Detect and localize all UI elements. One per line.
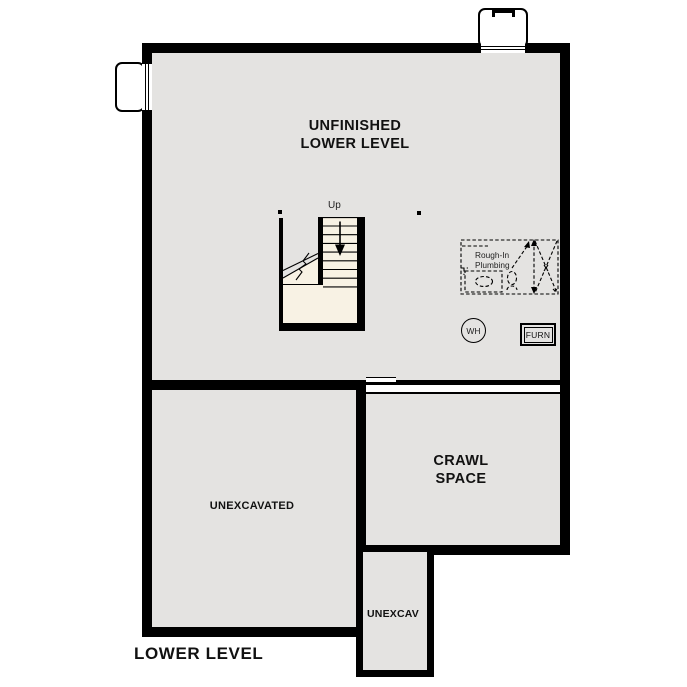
crawl-space-access-hatch (366, 377, 396, 383)
unexcav-label: UNEXCAV (353, 608, 433, 620)
rough-in-plumbing-area: Rough-In Plumbing (458, 236, 562, 298)
future-toilet-base (507, 286, 517, 290)
plan-title: LOWER LEVEL (134, 644, 263, 664)
staircase (275, 200, 370, 335)
window-glazing-line (481, 49, 525, 50)
window-marker-icon (492, 10, 515, 17)
furnace-inner-box: FURN (524, 327, 553, 343)
main-room-label-line1: UNFINISHED (255, 118, 455, 136)
crawl-space-access-gap (366, 385, 560, 394)
future-toilet-icon (508, 272, 517, 285)
plumbing-arrowheads (524, 239, 537, 294)
plumbing-arrow-line (512, 245, 528, 268)
structural-column-dot (417, 211, 421, 215)
floor-plan: Up Rough-In Plumbing WH FURN (0, 0, 687, 687)
water-heater-label: WH (466, 326, 480, 336)
window-glazing-line (481, 46, 525, 47)
stairs-up-label: Up (328, 200, 358, 211)
egress-window-well-left (115, 62, 145, 112)
main-room-label: UNFINISHED LOWER LEVEL (255, 118, 455, 153)
plumbing-label-line2: Plumbing (475, 260, 510, 270)
window-glazing-line (148, 64, 149, 110)
crawl-space-label-line1: CRAWL (361, 453, 561, 471)
future-vanity-outline (465, 271, 502, 292)
unexcavated-label: UNEXCAVATED (152, 500, 352, 512)
plumbing-label-line1: Rough-In (475, 250, 510, 260)
furnace-label: FURN (526, 330, 550, 340)
future-sink-icon (476, 277, 493, 287)
window-opening-left (142, 64, 152, 110)
window-glazing-line (145, 64, 146, 110)
furnace-symbol: FURN (520, 323, 556, 346)
crawl-space-label-line2: SPACE (361, 471, 561, 489)
main-room-label-line2: LOWER LEVEL (255, 136, 455, 154)
future-shower-icon (535, 241, 557, 293)
window-opening-top (481, 43, 525, 53)
crawl-space-label: CRAWL SPACE (361, 453, 561, 488)
water-heater-symbol: WH (461, 318, 486, 343)
structural-column-dot (278, 210, 282, 214)
